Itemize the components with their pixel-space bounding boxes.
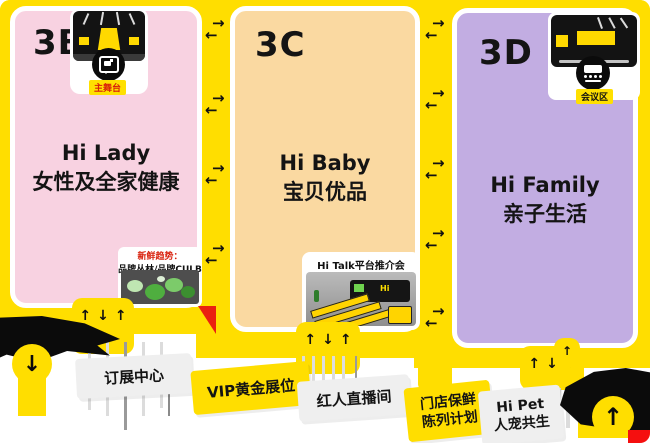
hi-talk-wall-logo: Hi [380, 284, 389, 293]
zone-3b-title-en: Hi Lady [15, 139, 197, 168]
corridor-arrows: →← [204, 17, 234, 41]
booth-vip: VIP黄金展位 [190, 361, 311, 415]
zone-3d-title-en: Hi Family [457, 171, 633, 200]
red-marker [628, 430, 650, 443]
conference-icon [584, 65, 602, 82]
main-stage-callout: 主舞台 [70, 8, 148, 94]
zone-3d-id: 3D [479, 33, 533, 73]
conference-callout: 会议区 [548, 12, 640, 100]
zone-3c-id: 3C [255, 25, 306, 65]
zone-3c-title: Hi Baby 宝贝优品 [235, 149, 415, 208]
corridor-arrows: →← [424, 227, 454, 251]
hi-talk-callout: Hi Talk平台推介会 Hi [302, 252, 420, 330]
zone-3b-title-zh: 女性及全家健康 [15, 168, 197, 197]
zone-3b-title: Hi Lady 女性及全家健康 [15, 139, 197, 198]
red-exit-wedge [198, 306, 216, 334]
corridor-arrows: →← [424, 17, 454, 41]
corridor-arrows: →← [424, 87, 454, 111]
zone-3c-title-zh: 宝贝优品 [235, 178, 415, 207]
fresh-trend-line1: 新鲜趋势： [118, 249, 202, 262]
main-stage-tag: 主舞台 [89, 80, 126, 95]
gate-tab-up: ↑ [554, 338, 580, 368]
conference-tag: 会议区 [576, 89, 613, 104]
zone-3d-title: Hi Family 亲子生活 [457, 171, 633, 230]
booth-order-center: 订展中心 [75, 353, 193, 399]
corridor-arrows: →← [204, 242, 234, 266]
fresh-trend-callout: 新鲜趋势： 品牌丛林/品牌CULB [118, 247, 202, 307]
hi-talk-image: Hi [306, 272, 416, 326]
booth-hi-pet: Hi Pet 人宠共生 [478, 385, 564, 443]
thumbs-up-badge [92, 48, 125, 81]
fresh-trend-image [121, 270, 199, 304]
booth-live-room: 红人直播间 [297, 374, 412, 422]
entrance-down-arrow: ↓ [12, 344, 52, 384]
conference-badge [576, 56, 610, 90]
corridor-arrows: →← [204, 162, 234, 186]
corridor-arrows: →← [204, 92, 234, 116]
like-bubble-icon [99, 56, 119, 73]
zone-3d-title-zh: 亲子生活 [457, 200, 633, 229]
hi-talk-title: Hi Talk平台推介会 [302, 257, 420, 272]
corridor-arrows: →← [424, 305, 454, 329]
corridor-arrows: →← [424, 157, 454, 181]
exhibition-floorplan: 3B Hi Lady 女性及全家健康 主舞台 新鲜趋势： 品牌丛林/品牌CULB [0, 0, 650, 443]
zone-3c-title-en: Hi Baby [235, 149, 415, 178]
